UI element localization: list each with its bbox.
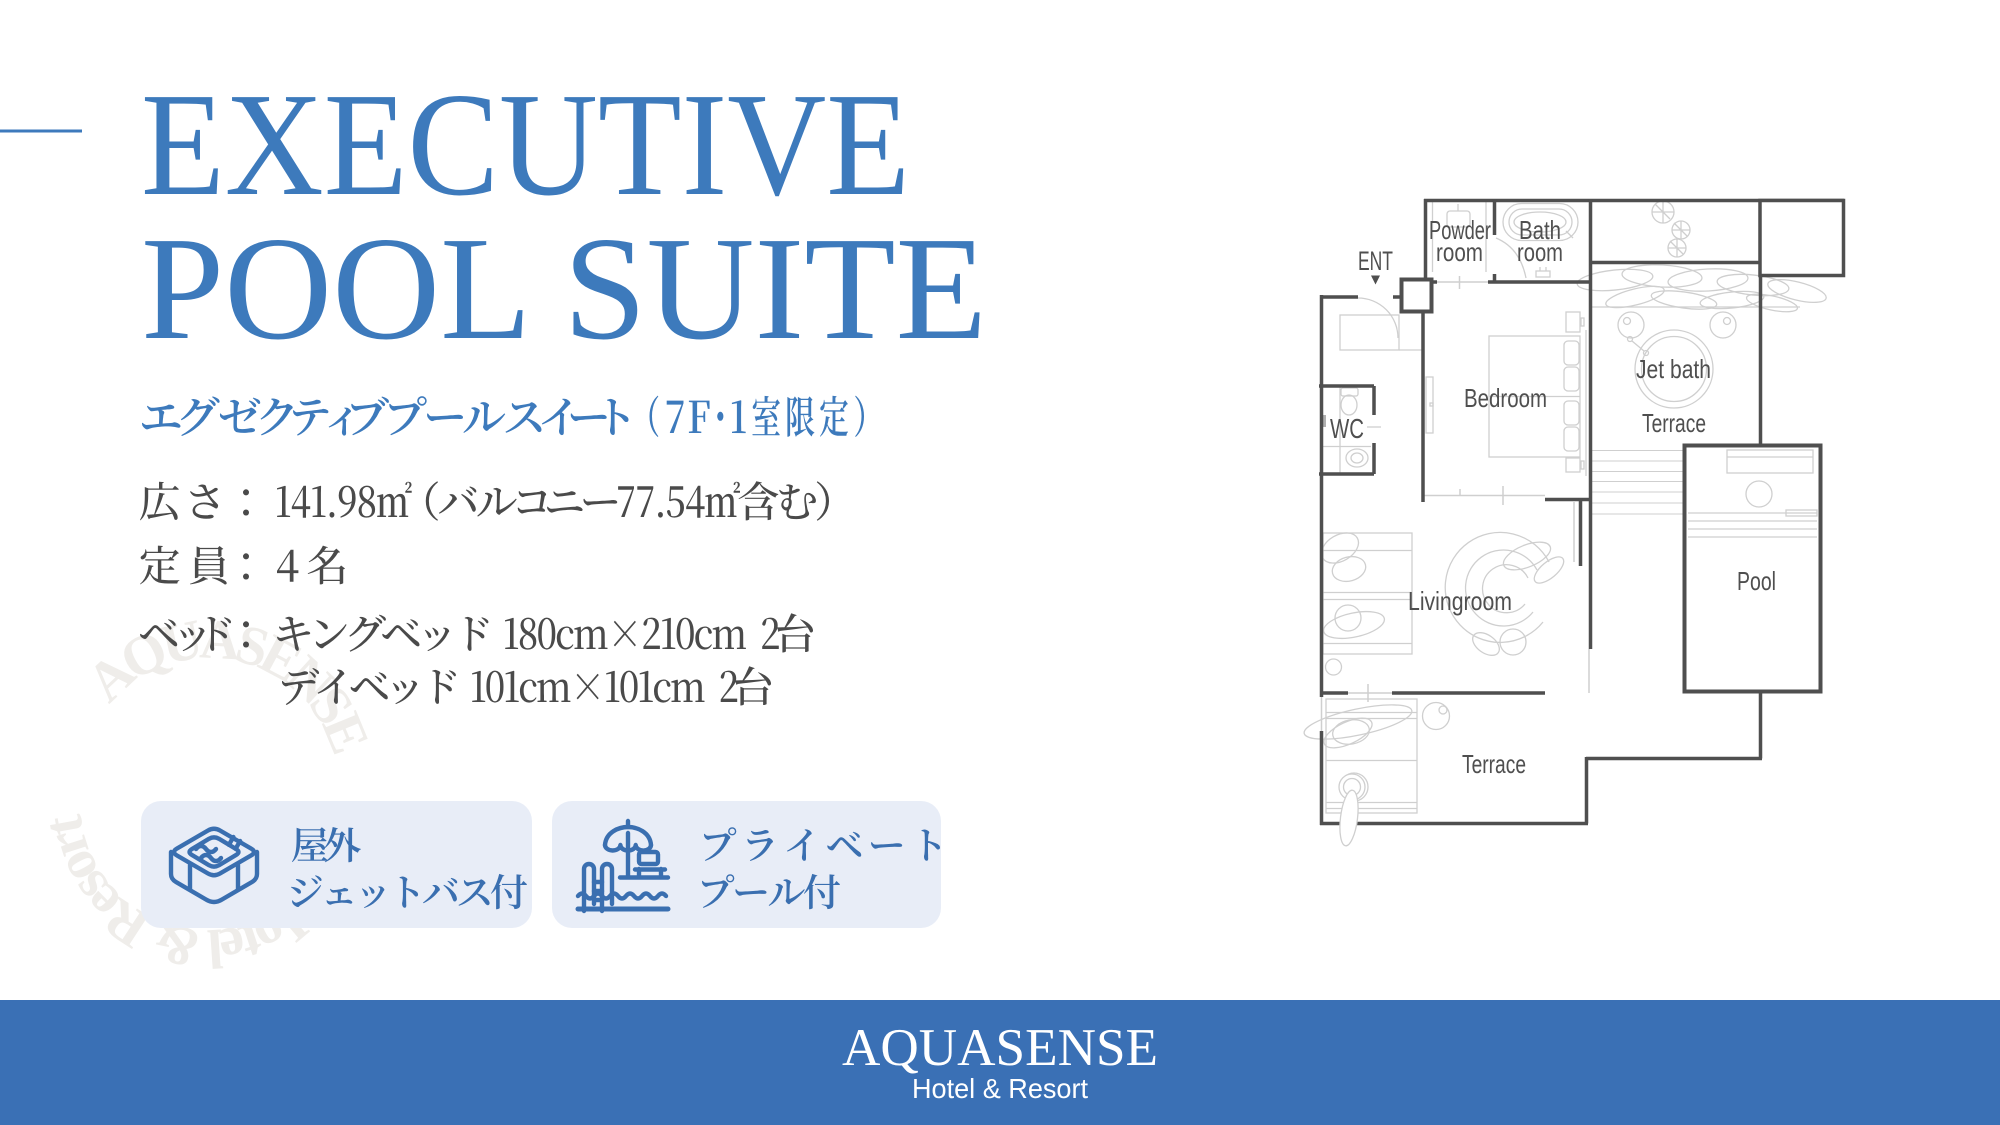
svg-text:EXECUTIVE: EXECUTIVE <box>141 63 910 227</box>
svg-text:Livingroom: Livingroom <box>1408 586 1512 616</box>
svg-text:Jet bath: Jet bath <box>1636 354 1711 384</box>
svg-text:Hotel & Resort: Hotel & Resort <box>912 1073 1088 1104</box>
svg-text:Terrace: Terrace <box>1462 749 1526 779</box>
svg-text:room: room <box>1517 237 1563 267</box>
svg-text:WC: WC <box>1330 413 1364 444</box>
svg-text:Pool: Pool <box>1737 566 1776 596</box>
svg-text:Bedroom: Bedroom <box>1464 383 1547 413</box>
svg-text:ENT: ENT <box>1358 246 1393 276</box>
svg-text:POOL SUITE: POOL SUITE <box>141 207 987 371</box>
svg-text:room: room <box>1436 237 1483 267</box>
svg-text:AQUASENSE: AQUASENSE <box>842 1019 1158 1077</box>
svg-text:Terrace: Terrace <box>1642 408 1706 438</box>
svg-text:AQUASENSE: AQUASENSE <box>75 608 380 760</box>
